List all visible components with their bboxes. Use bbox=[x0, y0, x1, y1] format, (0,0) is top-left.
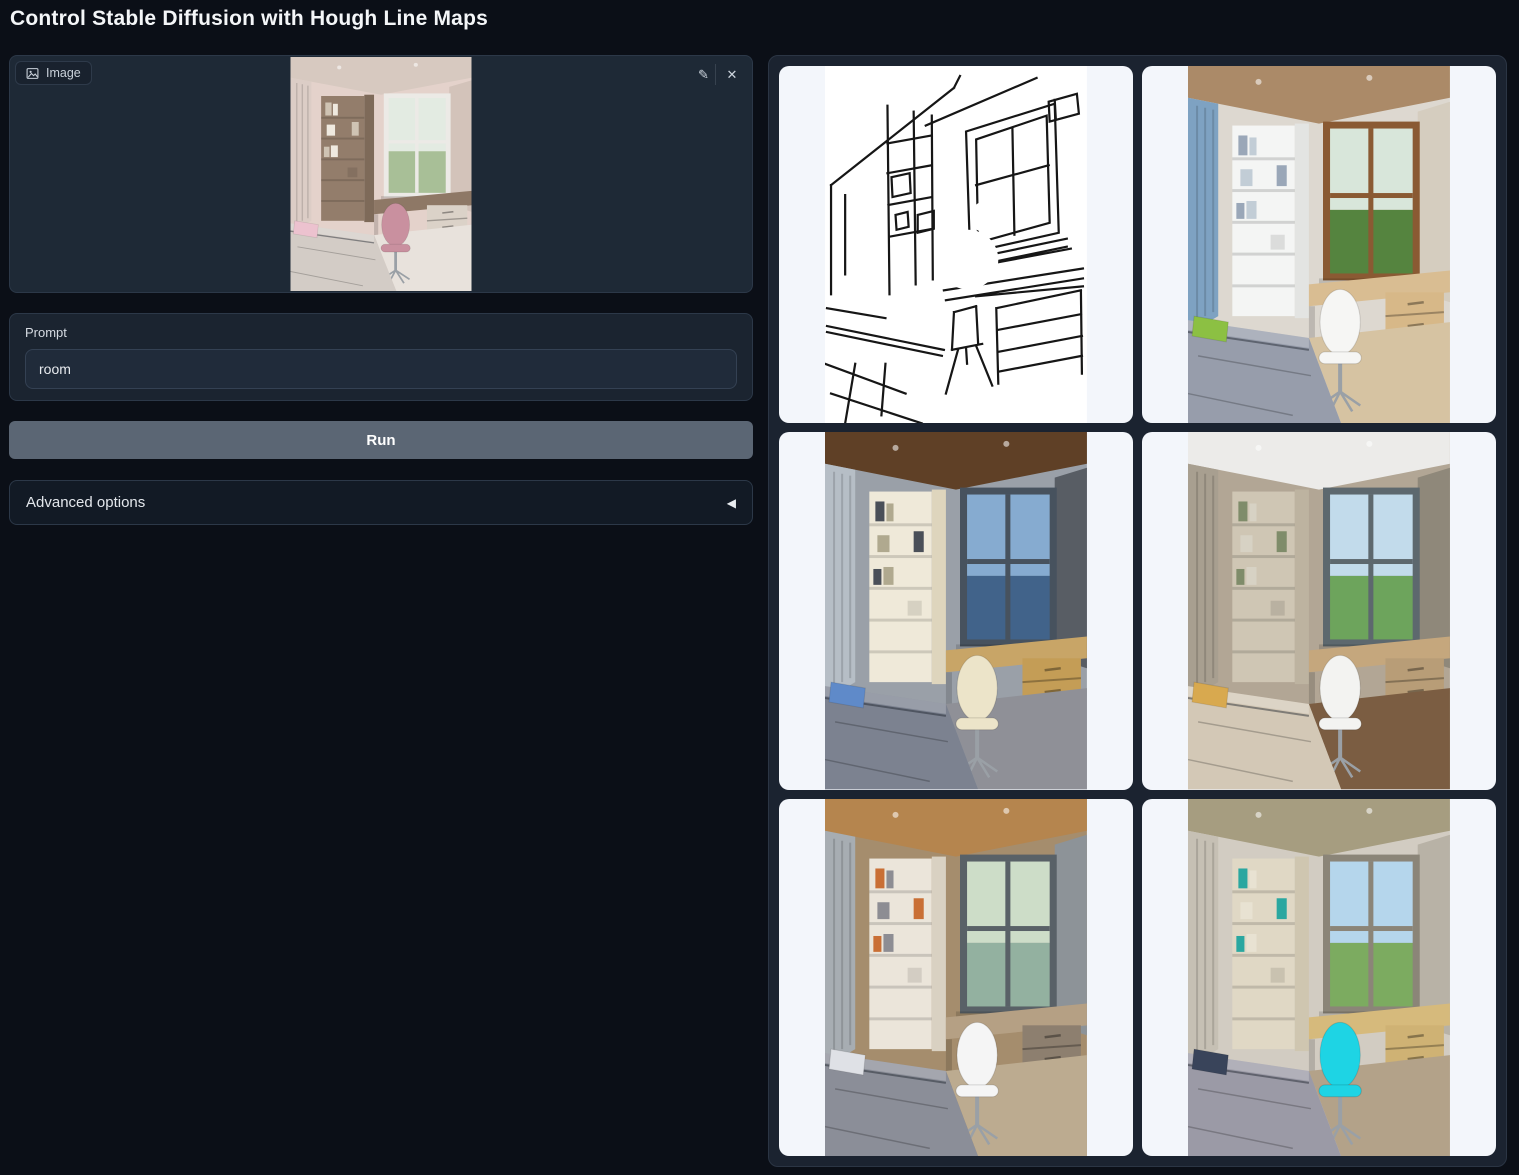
run-button[interactable]: Run bbox=[9, 421, 753, 459]
prompt-panel: Prompt bbox=[9, 313, 753, 401]
edit-button[interactable]: ✎ bbox=[692, 64, 716, 85]
uploaded-image-art bbox=[291, 57, 472, 291]
generated-image bbox=[1188, 432, 1450, 789]
advanced-options-accordion[interactable]: Advanced options ◀ bbox=[9, 480, 753, 525]
gallery-item-hough-map[interactable] bbox=[779, 66, 1133, 423]
prompt-input[interactable] bbox=[25, 349, 737, 389]
image-label-tab: Image bbox=[15, 61, 92, 85]
gallery-item[interactable] bbox=[779, 799, 1133, 1156]
prompt-label: Prompt bbox=[25, 325, 737, 340]
advanced-options-label: Advanced options bbox=[26, 494, 145, 511]
output-gallery bbox=[768, 55, 1507, 1167]
gallery-item[interactable] bbox=[1142, 799, 1496, 1156]
hough-map-image bbox=[825, 66, 1087, 423]
uploaded-image bbox=[291, 57, 472, 291]
generated-image bbox=[1188, 66, 1450, 423]
page-title: Control Stable Diffusion with Hough Line… bbox=[10, 7, 488, 31]
close-icon: ✕ bbox=[727, 67, 738, 83]
gallery-item[interactable] bbox=[779, 432, 1133, 789]
image-upload-panel[interactable]: Image ✎ ✕ bbox=[9, 55, 753, 293]
image-label: Image bbox=[46, 66, 81, 80]
generated-image bbox=[1188, 799, 1450, 1156]
generated-image bbox=[825, 432, 1087, 789]
clear-button[interactable]: ✕ bbox=[720, 64, 744, 85]
chevron-left-icon: ◀ bbox=[727, 496, 736, 510]
generated-image bbox=[825, 799, 1087, 1156]
image-icon bbox=[26, 67, 39, 80]
app-root: Control Stable Diffusion with Hough Line… bbox=[0, 0, 1519, 1175]
gallery-item[interactable] bbox=[1142, 432, 1496, 789]
gallery-item[interactable] bbox=[1142, 66, 1496, 423]
pencil-icon: ✎ bbox=[698, 67, 709, 83]
